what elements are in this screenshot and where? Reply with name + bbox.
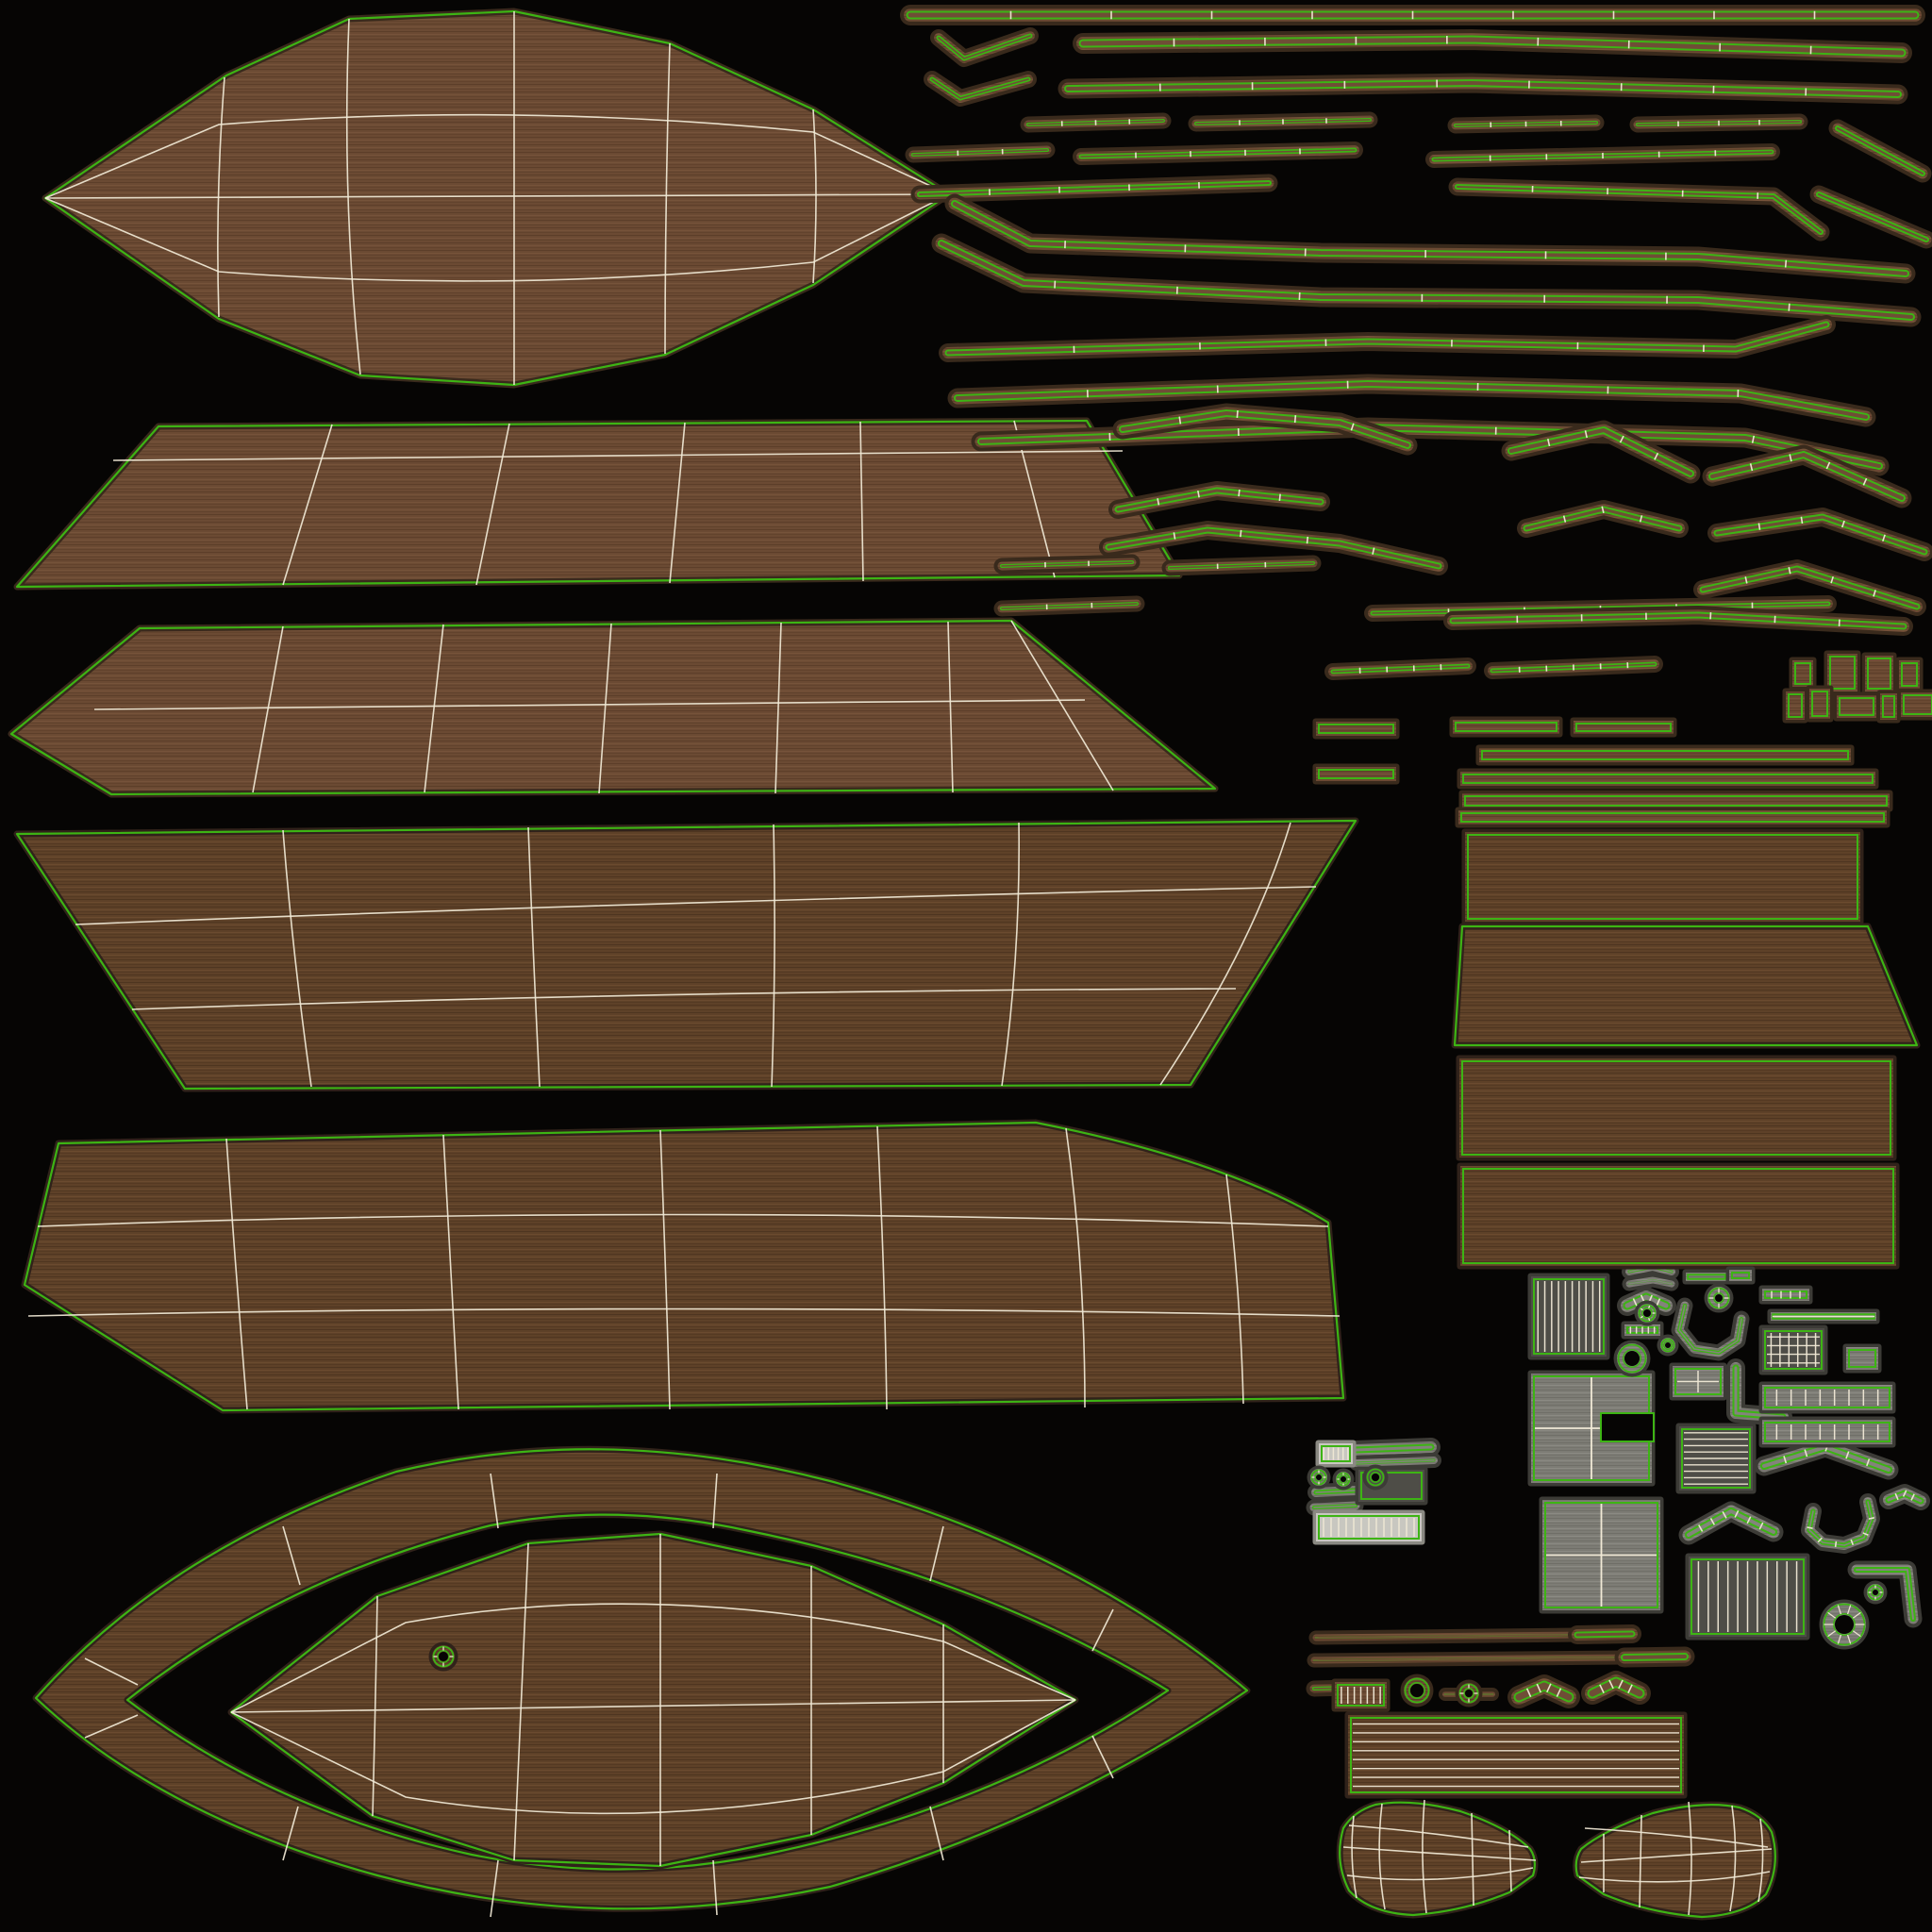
uv-part-rect xyxy=(1790,658,1817,691)
trim-strip-island xyxy=(1081,148,1355,158)
ring-island xyxy=(1614,1341,1651,1377)
trim-strip-island xyxy=(1629,1280,1672,1284)
uv-atlas-canvas xyxy=(0,0,1932,1932)
uv-part-rect xyxy=(1457,769,1879,790)
trim-strip-island xyxy=(1434,150,1772,160)
hardware-grate-a xyxy=(1528,1274,1610,1360)
uv-part-rect xyxy=(1768,1309,1880,1324)
hardware-plate-b xyxy=(1540,1497,1664,1614)
uv-part-rect xyxy=(1759,1382,1896,1414)
uv-part-rect xyxy=(1759,1286,1813,1305)
uv-part-rect xyxy=(1313,719,1400,740)
trim-strip-island xyxy=(1492,662,1655,673)
ring-island xyxy=(1820,1600,1870,1650)
trim-strip-island xyxy=(1196,118,1370,125)
ring-island xyxy=(1333,1469,1355,1491)
uv-part-rect xyxy=(1683,1270,1731,1285)
uv-part-rect xyxy=(1313,764,1400,785)
uv-part-rect xyxy=(1601,1413,1654,1441)
hardware-grate-b xyxy=(1686,1554,1810,1641)
trim-strip-island xyxy=(1624,1657,1685,1657)
trim-strip-island xyxy=(1456,121,1596,127)
trim-strip-island xyxy=(1357,1460,1434,1463)
transom-trapezoid xyxy=(1455,926,1917,1045)
ring-island xyxy=(1307,1466,1331,1490)
trim-strip-island xyxy=(1316,1491,1356,1492)
uv-part-rect xyxy=(1783,689,1808,724)
uv-part-rect xyxy=(1332,1679,1391,1712)
trim-strip-island xyxy=(1314,1506,1356,1507)
deck-plank xyxy=(1345,1712,1688,1799)
ring-island xyxy=(1401,1674,1434,1707)
uv-texture-atlas-image xyxy=(0,0,1932,1932)
uv-part-rect xyxy=(1571,718,1677,738)
hull-plank-large-a xyxy=(17,821,1356,1089)
uv-part-rect xyxy=(1834,692,1880,722)
uv-part-rect xyxy=(1877,691,1901,724)
trim-strip-island xyxy=(1314,1657,1624,1660)
trim-strip-island xyxy=(1356,1447,1431,1450)
trim-strip-island xyxy=(913,149,1047,156)
trim-strip-island xyxy=(1592,1680,1640,1693)
stern-panel-a xyxy=(1462,829,1864,925)
trim-strip-island xyxy=(1519,1684,1569,1697)
trim-strip-island xyxy=(1577,1634,1632,1635)
uv-part-rect xyxy=(1450,717,1563,738)
uv-part-rect xyxy=(1843,1344,1882,1374)
uv-part-rect xyxy=(1759,1417,1896,1448)
uv-part-rect xyxy=(1476,745,1855,766)
trim-strip-island xyxy=(1002,603,1137,609)
ring-island xyxy=(1635,1301,1660,1326)
hull-plank-mid xyxy=(11,621,1215,794)
ring-island xyxy=(1864,1581,1888,1605)
trim-strip-island xyxy=(1316,1635,1577,1638)
uv-part-rect xyxy=(1898,690,1932,721)
trim-strip-island xyxy=(1002,561,1132,568)
trim-strip-island xyxy=(1333,664,1468,674)
ring-island xyxy=(1456,1680,1483,1707)
uv-part-rect xyxy=(1456,808,1890,828)
uv-part-rect xyxy=(1316,1441,1357,1468)
ring-island xyxy=(1705,1284,1734,1313)
trim-strip-island xyxy=(1889,1491,1921,1501)
trim-strip-island xyxy=(1638,120,1800,126)
uv-part-rect xyxy=(1676,1424,1757,1494)
ring-island xyxy=(1363,1465,1389,1491)
trim-strip-island xyxy=(910,11,1915,20)
uv-part-rect xyxy=(1807,686,1834,723)
hardware-ladder xyxy=(1313,1510,1425,1545)
uv-part-rect xyxy=(1759,1325,1828,1375)
ring-island xyxy=(1657,1335,1679,1357)
stern-panel-b xyxy=(1457,1056,1897,1161)
trim-strip-island xyxy=(1170,562,1313,569)
uv-part-rect xyxy=(1896,658,1924,692)
uv-part-rect xyxy=(1726,1267,1756,1285)
uv-part-rect xyxy=(1670,1363,1727,1401)
trim-strip-island xyxy=(1453,612,1904,626)
stern-panel-c xyxy=(1457,1163,1900,1270)
hull-plank-large-b xyxy=(25,1123,1343,1410)
trim-strip-island xyxy=(920,182,1269,195)
uv-part-rect xyxy=(1862,653,1897,695)
trim-strip-island xyxy=(1028,119,1163,125)
ring-island xyxy=(429,1642,458,1672)
